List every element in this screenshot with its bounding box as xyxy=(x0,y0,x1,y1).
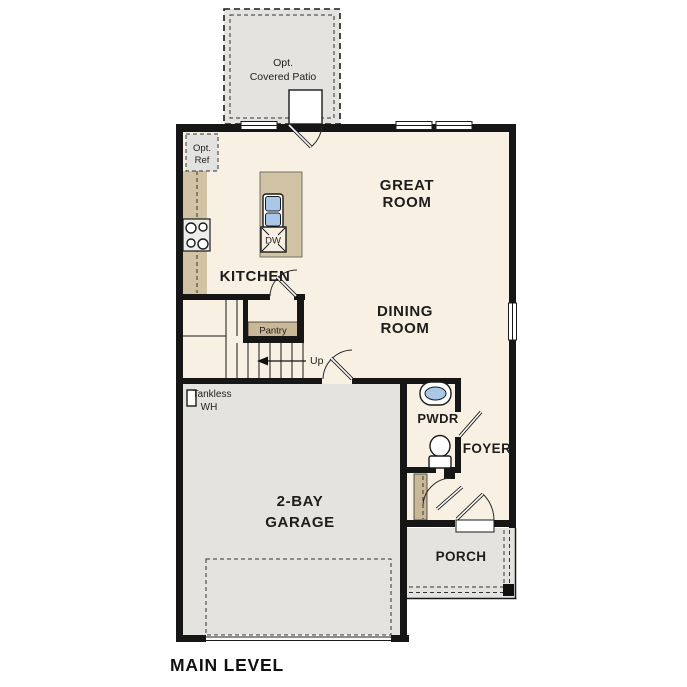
window xyxy=(509,303,517,340)
toilet-icon xyxy=(429,436,451,469)
patio-label-line2: Covered Patio xyxy=(250,71,317,83)
powder-sink-icon xyxy=(420,382,451,405)
window xyxy=(436,122,472,130)
floor-plan-page: Opt. Covered Patio Opt. Ref GREAT ROOM K… xyxy=(0,0,687,687)
up-label: Up xyxy=(310,355,324,367)
opt-ref-label-line2: Ref xyxy=(195,155,210,166)
great-room-label-line1: GREAT xyxy=(380,177,434,194)
garage-label-line2: GARAGE xyxy=(265,514,334,531)
great-room-label-line2: ROOM xyxy=(382,194,431,211)
porch-label: PORCH xyxy=(436,549,487,564)
patio-label-line1: Opt. xyxy=(273,57,293,69)
window xyxy=(241,122,277,130)
garage-floor-area xyxy=(183,384,400,636)
main-level-title: MAIN LEVEL xyxy=(170,655,284,675)
opt-ref-label-line1: Opt. xyxy=(193,143,211,154)
garage-label-line1: 2-BAY xyxy=(277,493,324,510)
kitchen-label: KITCHEN xyxy=(220,268,291,285)
pwdr-label: PWDR xyxy=(417,411,459,426)
floor-plan-drawing: Opt. Covered Patio Opt. Ref GREAT ROOM K… xyxy=(0,0,687,687)
window xyxy=(396,122,432,130)
porch-post xyxy=(503,584,514,596)
pantry-label: Pantry xyxy=(259,326,287,337)
range-burners-icon xyxy=(183,219,210,251)
dishwasher-label: DW xyxy=(265,236,281,247)
foyer-label: FOYER xyxy=(463,441,512,456)
kitchen-sink-icon xyxy=(263,194,283,228)
tankless-label-line2: WH xyxy=(201,402,218,413)
dining-room-label-line2: ROOM xyxy=(380,320,429,337)
tankless-label-line1: Tankless xyxy=(193,389,232,400)
dining-room-label-line1: DINING xyxy=(377,303,433,320)
